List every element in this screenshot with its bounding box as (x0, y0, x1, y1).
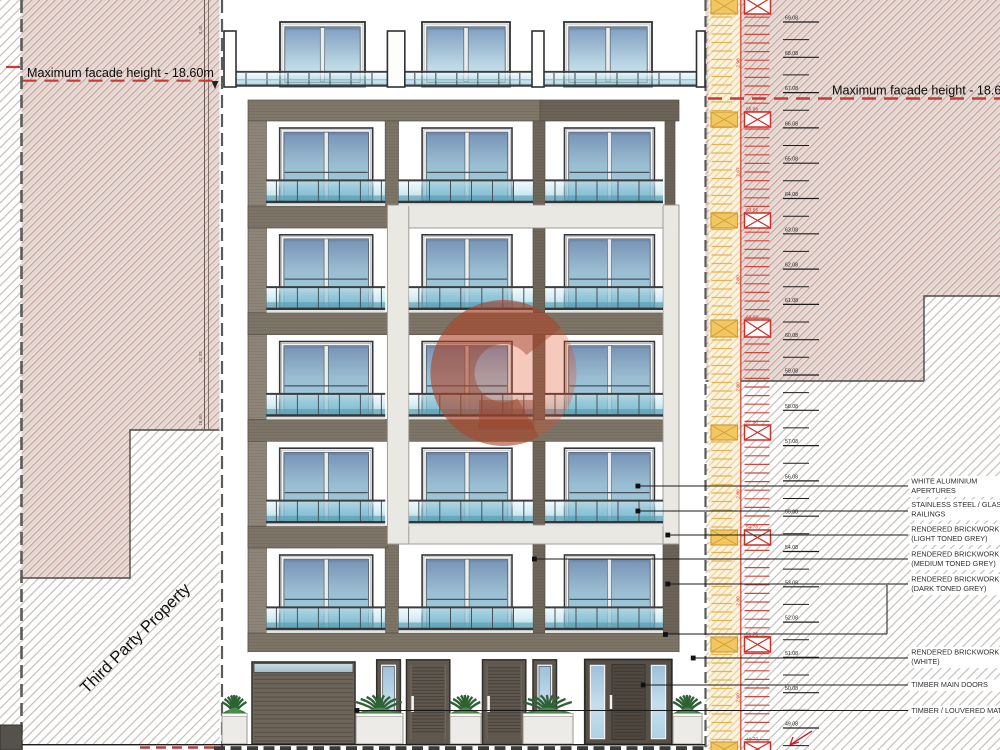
svg-text:60.08: 60.08 (746, 315, 758, 321)
svg-text:2.80: 2.80 (736, 275, 742, 285)
svg-text:69.08: 69.08 (785, 16, 798, 22)
svg-text:(LIGHT TONED GREY): (LIGHT TONED GREY) (911, 534, 987, 543)
svg-text:2.98: 2.98 (736, 58, 742, 68)
svg-text:52.08: 52.08 (785, 616, 798, 622)
svg-text:58.08: 58.08 (785, 404, 798, 410)
svg-text:49.08: 49.08 (785, 722, 798, 728)
svg-text:Maximum facade height - 18.60m: Maximum facade height - 18.60m (27, 66, 214, 80)
svg-text:51.08: 51.08 (785, 651, 798, 657)
svg-text:56.08: 56.08 (785, 474, 798, 480)
svg-text:59.08: 59.08 (785, 369, 798, 375)
svg-text:3.40: 3.40 (198, 25, 203, 34)
svg-text:54.08: 54.08 (785, 545, 798, 551)
svg-text:57.08: 57.08 (785, 439, 798, 445)
svg-text:TIMBER MAIN DOORS: TIMBER MAIN DOORS (911, 680, 988, 689)
svg-text:2.80: 2.80 (736, 596, 742, 606)
svg-text:(DARK TONED GREY): (DARK TONED GREY) (911, 584, 986, 593)
svg-text:65.08: 65.08 (785, 157, 798, 163)
svg-text:50.08: 50.08 (785, 686, 798, 692)
svg-text:RENDERED BRICKWORK: RENDERED BRICKWORK (911, 550, 999, 559)
svg-text:48.70: 48.70 (746, 737, 758, 743)
svg-text:67.08: 67.08 (785, 86, 798, 92)
svg-text:RENDERED BRICKWORK: RENDERED BRICKWORK (911, 575, 999, 584)
svg-text:APERTURES: APERTURES (911, 486, 956, 495)
svg-text:2.80: 2.80 (736, 489, 742, 499)
svg-text:2.90: 2.90 (736, 693, 742, 703)
svg-text:2.67: 2.67 (736, 167, 742, 177)
svg-text:WHITE ALUMINIUM: WHITE ALUMINIUM (911, 477, 977, 486)
svg-text:RAILINGS: RAILINGS (911, 510, 945, 519)
svg-text:18.60: 18.60 (198, 414, 203, 426)
svg-text:STAINLESS STEEL / GLASS: STAINLESS STEEL / GLASS (911, 500, 1000, 509)
svg-text:Maximum facade height - 18.6: Maximum facade height - 18.6 (832, 84, 1000, 98)
svg-text:RENDERED BRICKWORK: RENDERED BRICKWORK (911, 648, 999, 657)
svg-text:61.08: 61.08 (785, 298, 798, 304)
svg-text:(MEDIUM TONED GREY): (MEDIUM TONED GREY) (911, 559, 995, 568)
svg-text:65.08: 65.08 (746, 107, 758, 113)
svg-text:60.08: 60.08 (785, 333, 798, 339)
svg-text:RENDERED BRICKWORK: RENDERED BRICKWORK (911, 525, 999, 534)
svg-text:2.80: 2.80 (736, 382, 742, 392)
svg-text:62.08: 62.08 (785, 263, 798, 269)
svg-text:(WHITE): (WHITE) (911, 657, 939, 666)
svg-text:63.08: 63.08 (785, 227, 798, 233)
svg-text:54.78: 54.78 (746, 525, 758, 531)
svg-text:TIMBER / LOUVERED MATERIAL: TIMBER / LOUVERED MATERIAL (911, 706, 1000, 715)
svg-text:57.08: 57.08 (746, 420, 758, 426)
svg-text:53.08: 53.08 (785, 580, 798, 586)
svg-text:63.55: 63.55 (746, 208, 758, 214)
svg-text:64.08: 64.08 (785, 192, 798, 198)
svg-text:68.08: 68.08 (785, 51, 798, 57)
svg-text:66.08: 66.08 (785, 121, 798, 127)
svg-text:22.93: 22.93 (198, 351, 203, 363)
